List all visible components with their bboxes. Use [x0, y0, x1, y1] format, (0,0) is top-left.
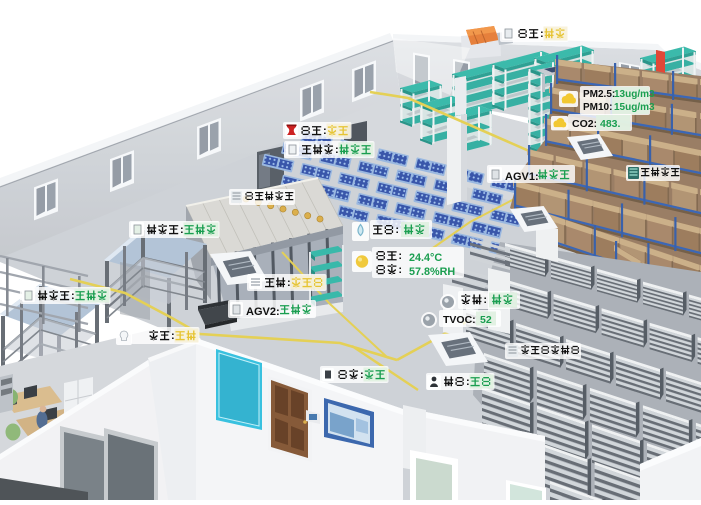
svg-text:CO2:: CO2: — [572, 118, 597, 130]
svg-text::: : — [483, 294, 487, 306]
svg-text::: : — [180, 224, 184, 236]
svg-text:15ug/m3: 15ug/m3 — [614, 102, 655, 113]
svg-text::: : — [171, 330, 175, 342]
svg-text:AGV1:: AGV1: — [505, 171, 539, 183]
svg-text::: : — [71, 290, 75, 302]
svg-text:PM2.5:: PM2.5: — [583, 89, 615, 100]
svg-text:PM10:: PM10: — [583, 102, 612, 113]
svg-text:TVOC:: TVOC: — [443, 314, 476, 326]
svg-text::: : — [466, 376, 470, 388]
svg-text:52: 52 — [480, 314, 492, 326]
svg-text::: : — [398, 264, 402, 276]
svg-text::: : — [398, 250, 402, 262]
svg-text::: : — [323, 125, 327, 137]
svg-text:AGV2:: AGV2: — [246, 306, 280, 318]
svg-text::: : — [335, 144, 339, 156]
svg-text:57.8%RH: 57.8%RH — [409, 266, 455, 278]
svg-text::: : — [540, 28, 544, 40]
svg-text::: : — [287, 277, 291, 289]
svg-text:24.4°C: 24.4°C — [409, 252, 442, 264]
svg-text::: : — [395, 224, 399, 236]
svg-text::: : — [360, 369, 364, 381]
svg-text:13ug/m3: 13ug/m3 — [614, 89, 655, 100]
svg-text:483.: 483. — [600, 118, 621, 130]
